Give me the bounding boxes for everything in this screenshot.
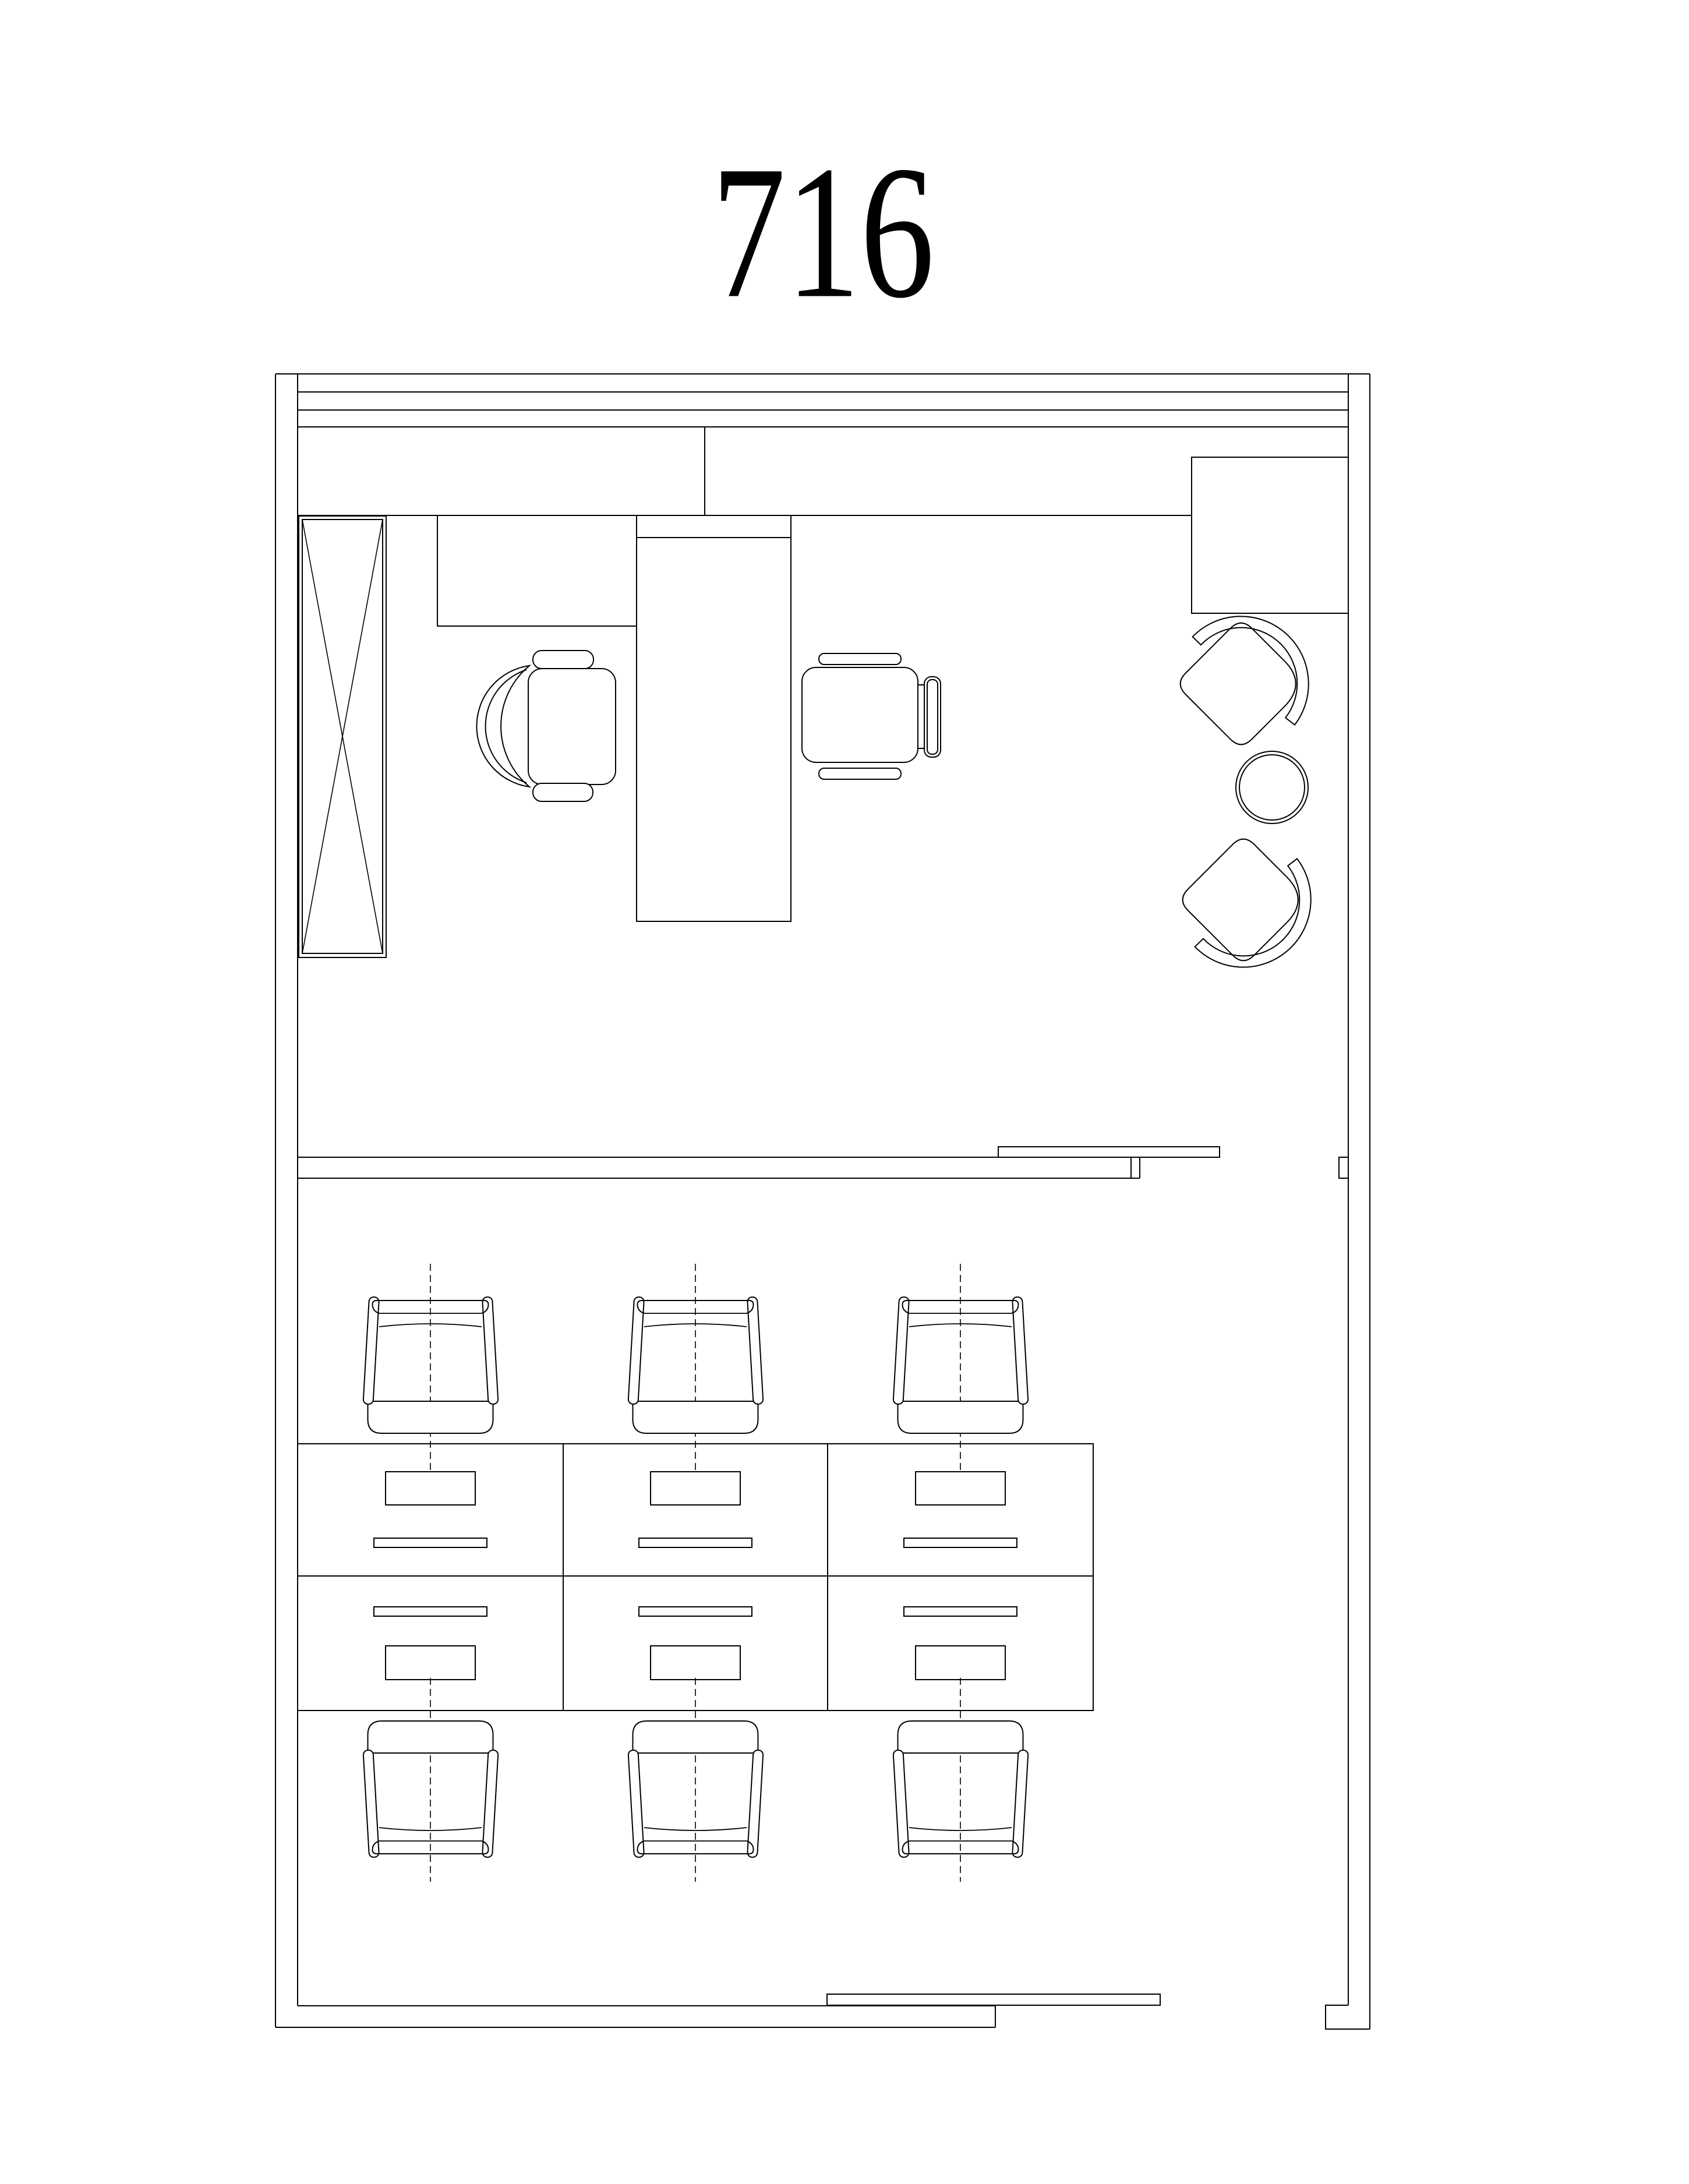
svg-text:716: 716 xyxy=(712,128,935,338)
